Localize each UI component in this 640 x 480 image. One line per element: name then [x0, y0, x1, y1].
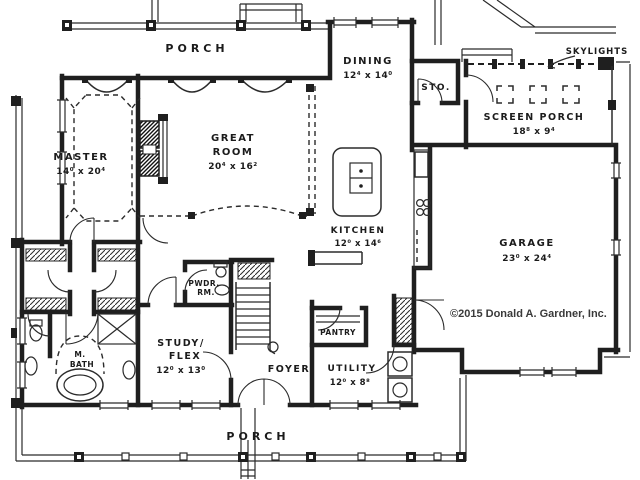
window	[372, 17, 398, 28]
floor-plan-sheet: PORCH PORCH MASTER 14⁰ x 20⁴ GREAT ROOM …	[0, 0, 640, 480]
window	[520, 367, 544, 377]
powder-label-1: PWDR.	[188, 279, 219, 288]
utility-dims: 12⁰ x 8⁸	[330, 378, 371, 388]
post	[301, 20, 311, 31]
porch-bottom-label: PORCH	[226, 430, 289, 443]
dining-label: DINING	[343, 56, 393, 67]
screen-porch-label: SCREEN PORCH	[484, 112, 585, 123]
utility-label: UTILITY	[327, 364, 376, 374]
utility-fixtures	[388, 352, 412, 402]
fireplace	[140, 114, 168, 184]
pantry-label: PANTRY	[320, 328, 356, 337]
window	[330, 400, 358, 410]
master-dims: 14⁰ x 20⁴	[56, 167, 106, 177]
study-label-2: FLEX	[169, 351, 201, 362]
post	[456, 452, 466, 462]
post	[74, 452, 84, 462]
garage-label: GARAGE	[499, 238, 554, 249]
kitchen-label: KITCHEN	[331, 226, 386, 236]
stairs	[236, 282, 278, 354]
window	[611, 240, 621, 255]
dining-dims: 12⁴ x 14⁰	[343, 71, 393, 81]
garage-dims: 23⁰ x 24⁴	[502, 254, 552, 264]
study-dims: 12⁰ x 13⁰	[156, 366, 206, 376]
window	[552, 367, 576, 377]
master-bath-label-2: BATH	[70, 360, 94, 369]
post	[146, 20, 156, 31]
master-label: MASTER	[53, 152, 108, 163]
skylight-symbol	[497, 86, 513, 103]
kitchen-dims: 12⁰ x 14⁶	[334, 239, 381, 249]
great-room-label-2: ROOM	[213, 147, 254, 158]
skylight-symbol	[563, 86, 579, 103]
storage-label: STO.	[421, 83, 451, 93]
window	[17, 318, 27, 344]
porch-top-label: PORCH	[165, 42, 228, 55]
master-bath-label-1: M.	[74, 350, 85, 359]
porch-rails	[16, 23, 466, 479]
copyright-notice: ©2015 Donald A. Gardner, Inc.	[450, 308, 607, 320]
post	[238, 452, 248, 462]
foyer-label: FOYER	[268, 364, 310, 375]
screen-porch-dims: 18⁸ x 9⁴	[513, 127, 556, 137]
window	[192, 400, 220, 410]
kitchen-fixtures	[308, 148, 430, 268]
skylight-symbol	[530, 86, 546, 103]
ceiling-lines	[56, 84, 315, 374]
study-label-1: STUDY/	[157, 338, 205, 349]
window	[152, 400, 180, 410]
great-room-label-1: GREAT	[211, 133, 255, 144]
post	[406, 452, 416, 462]
post	[62, 20, 72, 31]
great-room-dims: 20⁴ x 16²	[208, 162, 258, 172]
porch-posts	[11, 20, 466, 462]
powder-label-2: RM.	[197, 288, 215, 297]
window	[57, 100, 67, 132]
walls	[20, 20, 618, 407]
post	[236, 20, 246, 31]
floor-plan-canvas: PORCH PORCH MASTER 14⁰ x 20⁴ GREAT ROOM …	[0, 0, 640, 480]
post	[306, 452, 316, 462]
window	[611, 163, 621, 178]
window	[100, 400, 128, 410]
skylights-label: SKYLIGHTS	[566, 47, 628, 57]
window	[334, 17, 356, 28]
